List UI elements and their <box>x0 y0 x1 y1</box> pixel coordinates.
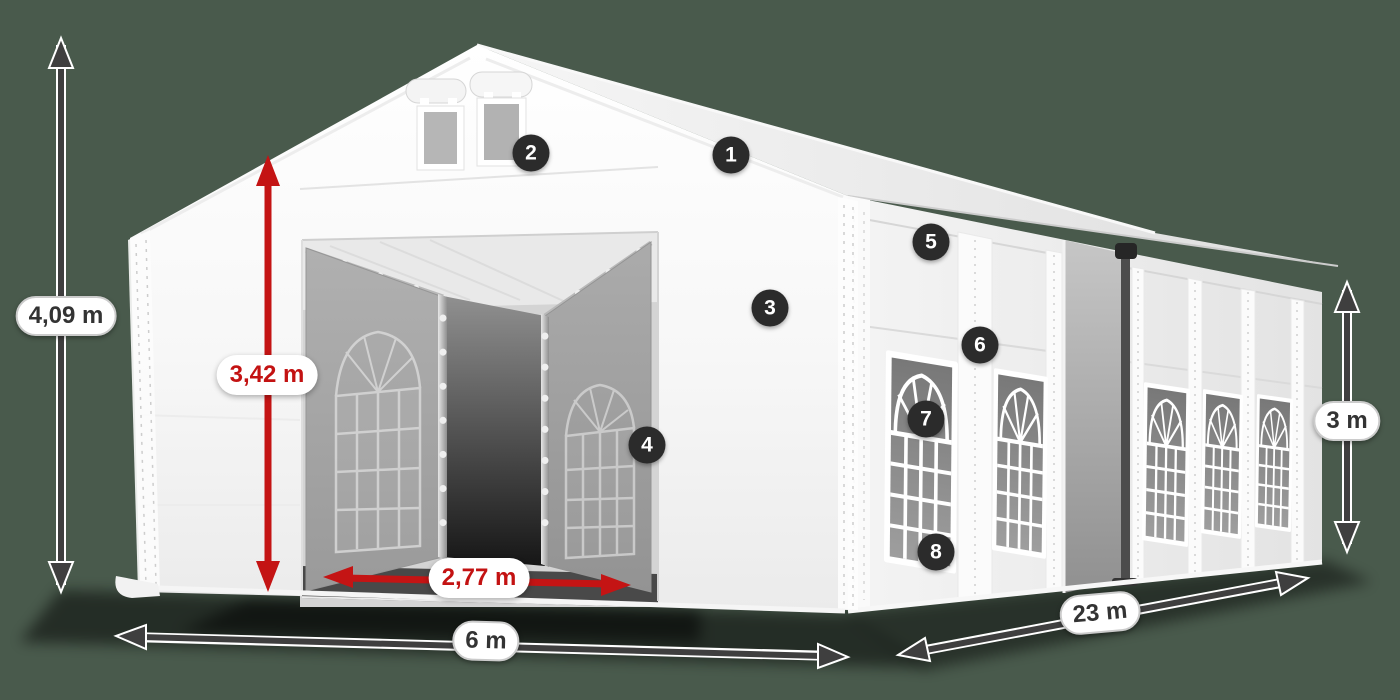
feature-marker-2: 2 <box>513 135 550 172</box>
dim-label-entrance-width: 2,77 m <box>429 558 530 598</box>
entrance-door-left <box>306 248 447 591</box>
side-window-2 <box>992 368 1048 559</box>
side-window-3 <box>1142 382 1190 547</box>
feature-marker-3: 3 <box>752 290 789 327</box>
feature-marker-7: 7 <box>908 401 945 438</box>
feature-marker-6: 6 <box>962 327 999 364</box>
side-door-opening <box>1064 240 1138 593</box>
dim-label-total-height: 4,09 m <box>16 296 117 336</box>
tent-illustration <box>0 0 1400 700</box>
feature-marker-1: 1 <box>713 137 750 174</box>
feature-marker-5: 5 <box>913 224 950 261</box>
side-window-5 <box>1255 394 1293 532</box>
tent-dimension-diagram: 1 2 3 4 5 6 7 8 4,09 m 3,42 m 2,77 m 6 m… <box>0 0 1400 700</box>
feature-marker-4: 4 <box>629 427 666 464</box>
dim-label-entrance-height: 3,42 m <box>217 355 318 395</box>
dim-label-wall-height: 3 m <box>1313 401 1380 441</box>
dim-label-front-width: 6 m <box>452 620 520 662</box>
side-window-4 <box>1201 389 1243 539</box>
feature-marker-8: 8 <box>918 534 955 571</box>
